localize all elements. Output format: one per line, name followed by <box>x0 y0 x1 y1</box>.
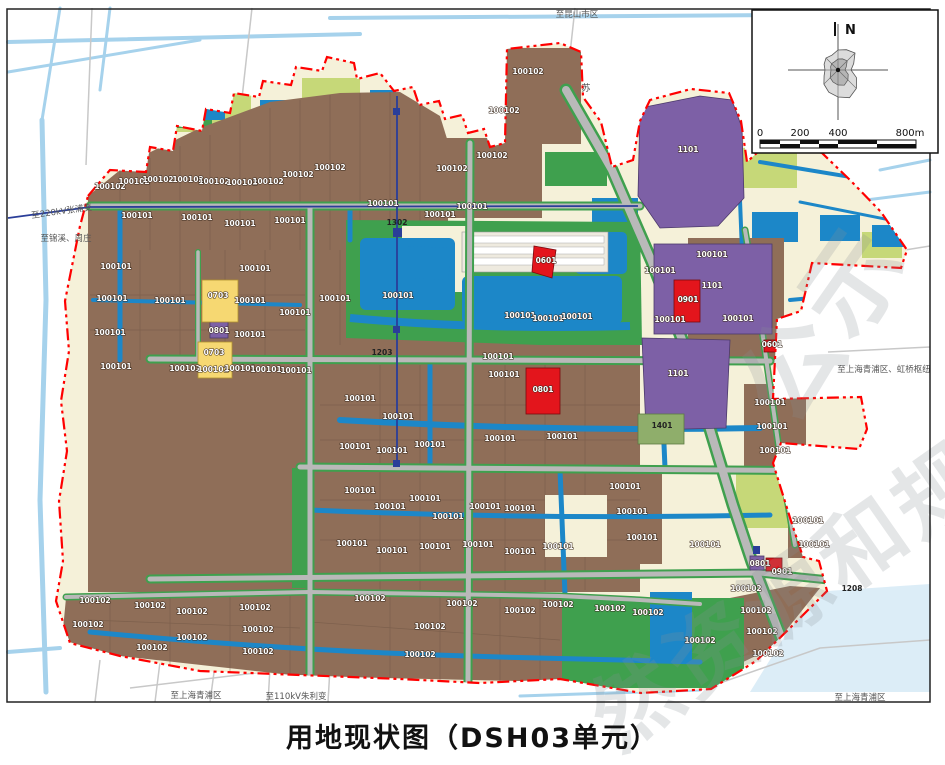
map-label: 100101 <box>542 542 573 551</box>
map-label: 100101 <box>100 262 131 271</box>
map-label: 100101 <box>376 446 407 455</box>
map-label: 至昆山市区 <box>556 9 599 20</box>
map-label: 100102 <box>476 151 507 160</box>
landuse-map: 1001021001021001021001021001021001021001… <box>0 0 945 765</box>
map-label: 0703 <box>208 291 229 300</box>
map-label: 100101 <box>469 502 500 511</box>
map-label: 100101 <box>234 296 265 305</box>
map-label: 100101 <box>722 314 753 323</box>
map-label: 100102 <box>72 620 103 629</box>
map-label: 100102 <box>594 604 625 613</box>
map-label: 至锦溪、周庄 <box>40 233 92 244</box>
map-label: 100101 <box>546 432 577 441</box>
compass-box: N 0200400800m <box>752 10 938 153</box>
map-label: 100101 <box>689 540 720 549</box>
map-label: 100101 <box>374 502 405 511</box>
map-label: 100101 <box>414 440 445 449</box>
map-label: 100101 <box>609 482 640 491</box>
map-label: 至上海青浦区 <box>170 690 222 701</box>
map-label: 100101 <box>504 311 535 320</box>
map-label: 100101 <box>339 442 370 451</box>
map-label: 100102 <box>198 177 229 186</box>
map-label: 0901 <box>678 295 699 304</box>
map-label: 100101 <box>224 219 255 228</box>
map-label: 1203 <box>372 348 393 357</box>
map-label: 100101 <box>154 296 185 305</box>
map-label: 100102 <box>314 163 345 172</box>
map-label: 100101 <box>279 308 310 317</box>
map-label: 100102 <box>176 607 207 616</box>
map-label: 100102 <box>414 622 445 631</box>
map-label: 100102 <box>446 599 477 608</box>
map-label: 100102 <box>404 650 435 659</box>
map-label: 100101 <box>382 412 413 421</box>
map-label: 100101 <box>759 446 790 455</box>
map-label: 100101 <box>484 434 515 443</box>
map-label: 100101 <box>382 291 413 300</box>
map-label: 200 <box>790 128 809 139</box>
map-label: 100101 <box>181 213 212 222</box>
map-label: 100102 <box>142 175 173 184</box>
map-label: 100101 <box>654 315 685 324</box>
map-label: 100101 <box>344 394 375 403</box>
map-label: 100101 <box>280 366 311 375</box>
map-label: 100101 <box>169 364 200 373</box>
map-label: 1101 <box>702 281 723 290</box>
map-label: 100102 <box>252 177 283 186</box>
map-label: 0801 <box>533 385 554 394</box>
map-label: 100102 <box>282 170 313 179</box>
map-label: 100101 <box>319 294 350 303</box>
map-label: 100101 <box>462 540 493 549</box>
map-label: 100102 <box>632 608 663 617</box>
map-label: 100101 <box>367 199 398 208</box>
map-label: 100101 <box>561 312 592 321</box>
map-label: 100101 <box>696 250 727 259</box>
map-label: 100101 <box>419 542 450 551</box>
map-label: 100101 <box>504 504 535 513</box>
map-label: 100102 <box>512 67 543 76</box>
map-label: 100102 <box>176 633 207 642</box>
map-label: 800m <box>896 128 925 139</box>
map-label: 100101 <box>239 264 270 273</box>
map-label: 100102 <box>436 164 467 173</box>
map-label: 100101 <box>376 546 407 555</box>
north-label: N <box>845 23 856 38</box>
map-label: 0 <box>757 128 763 139</box>
map-label: 1101 <box>668 369 689 378</box>
map-label: 100102 <box>136 643 167 652</box>
map-label: 100101 <box>336 539 367 548</box>
map-label: 100101 <box>432 512 463 521</box>
map-label: 苏 <box>581 82 590 94</box>
map-label: 100101 <box>409 494 440 503</box>
map-label: 100101 <box>274 216 305 225</box>
map-label: 100102 <box>542 600 573 609</box>
map-label: 100102 <box>504 606 535 615</box>
map-label: 100102 <box>242 647 273 656</box>
map-title: 用地现状图（DSH03单元） <box>0 716 945 755</box>
map-label: 0801 <box>209 326 230 335</box>
map-label: 100101 <box>504 547 535 556</box>
map-label: 100101 <box>234 330 265 339</box>
map-label: 100101 <box>100 362 131 371</box>
map-label: 100101 <box>488 370 519 379</box>
map-label: 100102 <box>488 106 519 115</box>
map-label: 0703 <box>204 348 225 357</box>
map-label: 100101 <box>532 314 563 323</box>
map-label: 100101 <box>424 210 455 219</box>
map-label: 100102 <box>134 601 165 610</box>
map-label: 100101 <box>344 486 375 495</box>
map-label: 100101 <box>456 202 487 211</box>
landuse-map-page: 1001021001021001021001021001021001021001… <box>0 0 945 765</box>
map-label: 100101 <box>482 352 513 361</box>
map-label: 100102 <box>239 603 270 612</box>
map-label: 100101 <box>250 365 281 374</box>
map-label: 100101 <box>616 507 647 516</box>
map-label: 100101 <box>644 266 675 275</box>
map-label: 1101 <box>678 145 699 154</box>
map-label: 0601 <box>536 256 557 265</box>
map-label: 至110kV朱利变 <box>266 691 327 702</box>
map-label: 400 <box>828 128 847 139</box>
map-label: 100101 <box>94 328 125 337</box>
road-labels: 苏 <box>581 82 590 94</box>
map-label: 100101 <box>96 294 127 303</box>
map-label: 1401 <box>652 421 673 430</box>
map-label: 1302 <box>387 218 408 227</box>
map-label: 100102 <box>79 596 110 605</box>
map-label: 100101 <box>626 533 657 542</box>
map-label: 100102 <box>354 594 385 603</box>
map-label: 100102 <box>242 625 273 634</box>
map-label: 100101 <box>121 211 152 220</box>
